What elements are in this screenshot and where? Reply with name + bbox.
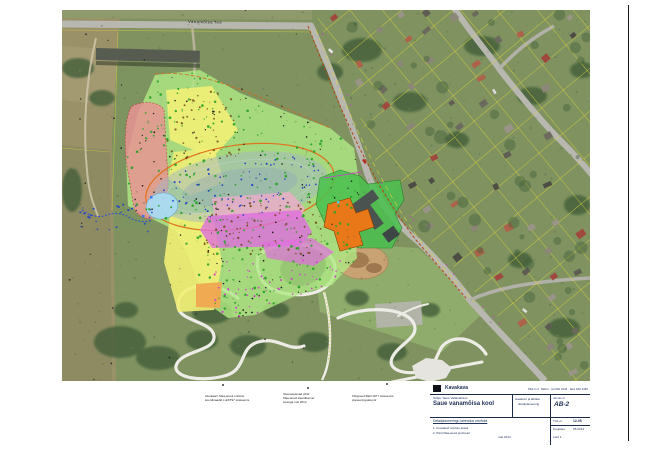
sheet-label: Joonis nr xyxy=(553,396,565,400)
zone-orange-south xyxy=(196,282,222,308)
project-name: Saue vanamõisa kool xyxy=(433,401,494,407)
pen-mark xyxy=(307,387,309,389)
titleblock-divider xyxy=(550,425,590,426)
job-number-value: 12-05 xyxy=(573,419,582,423)
cyan-marker xyxy=(337,201,340,204)
job-number-label: Töö nr xyxy=(553,419,562,423)
page-number: Leht 1 xyxy=(553,435,562,439)
company-contact: Pikk tn 2, Tallinn · tel 640 4444 · faks… xyxy=(486,387,588,391)
aerial-photo-canvas: Vanamõisa tee xyxy=(62,10,590,381)
titleblock-divider xyxy=(430,417,590,418)
titleblock-note-2: 2. Piirid Maa-ameti andmetel xyxy=(433,431,470,435)
date-text: mai 2014 xyxy=(498,435,511,439)
page-border-line xyxy=(628,5,629,441)
date-label: Kuupäev xyxy=(553,427,565,431)
titleblock-divider xyxy=(430,394,590,395)
company-name: Kavakava xyxy=(445,385,468,391)
stage-line-2: detailplaneering xyxy=(518,402,539,406)
pen-mark xyxy=(222,384,224,386)
top-road xyxy=(62,24,312,26)
titleblock-divider xyxy=(512,394,513,417)
orthophoto-map: Vanamõisa tee xyxy=(62,10,590,381)
title-block: Kavakava Pikk tn 2, Tallinn · tel 640 44… xyxy=(430,383,590,445)
stage-line-1: staadioni ja lähiala xyxy=(515,397,540,401)
sheet-code: AB-2 xyxy=(554,401,569,408)
titleblock-note-1: 1. Koostatud ortofoto alusel xyxy=(433,426,468,430)
map-note-2: Olemasolevad piirid Maa-ameti kaardiserv… xyxy=(283,393,347,405)
street-name-label: Vanamõisa tee xyxy=(188,19,222,25)
titleblock-divider xyxy=(550,394,551,445)
map-note-3: Kõrgused Balti 1977 süsteemis planeering… xyxy=(352,395,430,403)
map-note-1: Aluskaart: Maa-ameti ortofoto koordinaad… xyxy=(205,395,279,403)
client-line: Tellija: Saue Vallavalitsus xyxy=(433,396,468,400)
pen-mark xyxy=(386,383,388,385)
plan-sheet-page: Vanamõisa tee Aluskaart: Maa-ameti ortof… xyxy=(0,0,650,459)
drawing-title: Detailplaneeringu lahendus ortofotol xyxy=(433,419,487,423)
date-value: 05.2014 xyxy=(573,427,584,431)
company-logo-icon xyxy=(433,385,441,392)
